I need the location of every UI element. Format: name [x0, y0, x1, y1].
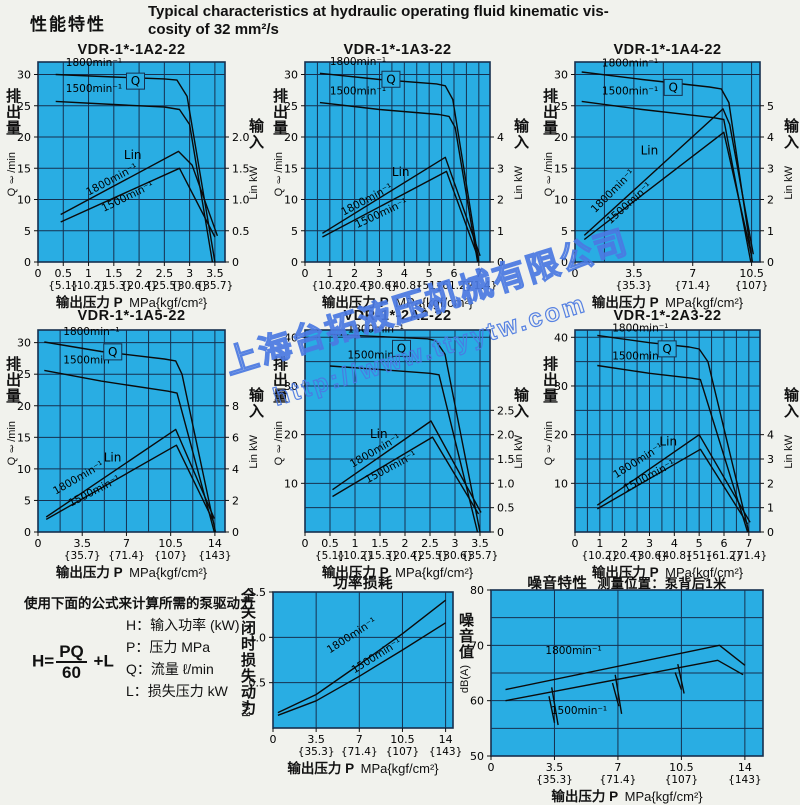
x-axis-label-unit: MPa{kgf/cm²} — [123, 565, 208, 580]
svg-text:30: 30 — [284, 69, 298, 82]
svg-text:6: 6 — [232, 431, 239, 444]
svg-text:2: 2 — [136, 267, 143, 280]
left-axis-unit-vdr2a2: Q ℓ/min — [273, 421, 285, 465]
svg-text:2: 2 — [767, 194, 774, 207]
svg-text:1.5: 1.5 — [105, 267, 123, 280]
x-axis-label-noise: 输出压力 P MPa{kgf/cm²} — [466, 785, 788, 805]
svg-text:4: 4 — [671, 537, 678, 550]
svg-text:3.5: 3.5 — [546, 761, 564, 774]
svg-text:0.5: 0.5 — [497, 502, 515, 515]
left-axis-title-noise: 噪音值 — [457, 612, 474, 660]
x-axis-label-unit: MPa{kgf/cm²} — [354, 761, 439, 776]
left-axis-unit-vdr2a3: Q ℓ/min — [543, 421, 555, 465]
chart-vdr1a4: VDR-1*-1A4-2203.5{35.3}7{71.4}10.5{107}0… — [535, 40, 800, 306]
svg-text:5: 5 — [24, 225, 31, 238]
svg-text:0: 0 — [270, 733, 277, 746]
svg-text:Lin: Lin — [392, 165, 410, 179]
page-title-cn: 性能特性 — [30, 10, 106, 35]
right-axis-title-vdr2a2: 输入 — [512, 387, 529, 419]
svg-text:14: 14 — [738, 761, 752, 774]
chart-vdr2a3: VDR-1*-2A3-2201{10.2}2{20.4}3{30.6}4{40.… — [535, 306, 800, 576]
left-axis-unit-noise: dB(A) — [459, 665, 471, 693]
svg-text:Q: Q — [397, 341, 406, 355]
svg-text:1.5: 1.5 — [497, 453, 515, 466]
right-axis-unit-vdr2a3: Lin kW — [783, 435, 795, 469]
svg-text:4: 4 — [767, 131, 774, 144]
svg-text:5: 5 — [426, 267, 433, 280]
svg-text:3: 3 — [646, 537, 653, 550]
svg-text:2: 2 — [232, 494, 239, 507]
svg-text:1800min⁻¹: 1800min⁻¹ — [348, 323, 404, 335]
x-axis-label-vdr1a5: 输出压力 P MPa{kgf/cm²} — [13, 561, 250, 581]
svg-text:1: 1 — [596, 537, 603, 550]
left-axis-title-vdr2a2: 排出量 — [271, 356, 288, 404]
svg-text:10: 10 — [554, 194, 568, 207]
x-axis-label-cn: 输出压力 P — [551, 789, 618, 804]
svg-text:0: 0 — [561, 256, 568, 269]
left-axis-title-vdr1a3: 排出量 — [271, 88, 288, 136]
svg-text:4: 4 — [401, 267, 408, 280]
svg-text:10.5: 10.5 — [390, 733, 415, 746]
svg-text:0: 0 — [572, 537, 579, 550]
svg-text:0.5: 0.5 — [55, 267, 73, 280]
svg-text:0: 0 — [302, 537, 309, 550]
svg-text:1800min⁻¹: 1800min⁻¹ — [612, 322, 668, 334]
svg-text:0: 0 — [35, 537, 42, 550]
svg-text:3: 3 — [376, 267, 383, 280]
x-axis-label-cn: 输出压力 P — [56, 565, 123, 580]
right-axis-title-vdr1a4: 输入 — [782, 118, 799, 150]
svg-text:8: 8 — [232, 400, 239, 413]
svg-text:7: 7 — [475, 267, 482, 280]
svg-text:60: 60 — [470, 695, 484, 708]
svg-text:3.5: 3.5 — [73, 537, 91, 550]
left-axis-title-vdr1a4: 排出量 — [541, 88, 558, 136]
left-axis-unit-power: kW — [241, 701, 253, 717]
svg-text:1: 1 — [326, 267, 333, 280]
svg-text:15: 15 — [17, 162, 31, 175]
svg-text:2: 2 — [767, 477, 774, 490]
chart-vdr1a3: VDR-1*-1A3-2201{10.2}2{20.4}3{30.6}4{40.… — [262, 40, 535, 306]
left-axis-title-vdr1a2: 排出量 — [4, 88, 21, 136]
svg-text:Lin: Lin — [104, 450, 122, 464]
svg-text:1: 1 — [85, 267, 92, 280]
svg-text:30: 30 — [17, 337, 31, 350]
svg-text:10: 10 — [554, 477, 568, 490]
svg-text:1: 1 — [767, 225, 774, 238]
svg-text:Q: Q — [131, 74, 140, 88]
svg-text:1: 1 — [767, 502, 774, 515]
chart-noise: 噪音特性测量位置：泵背后1米03.5{35.3}7{71.4}10.5{107}… — [435, 570, 800, 801]
formula-intro: 使用下面的公式来计算所需的泵驱动力 — [24, 592, 274, 612]
svg-text:0: 0 — [767, 526, 774, 539]
svg-text:30: 30 — [554, 69, 568, 82]
x-axis-label-unit: MPa{kgf/cm²} — [618, 789, 703, 804]
plot-vdr1a4: 03.5{35.3}7{71.4}10.5{107}05101520253001… — [535, 40, 800, 306]
svg-text:4: 4 — [497, 131, 504, 144]
svg-text:1800min⁻¹: 1800min⁻¹ — [602, 57, 658, 69]
svg-text:2: 2 — [621, 537, 628, 550]
svg-text:0: 0 — [232, 256, 239, 269]
x-axis-label-cn: 输出压力 P — [287, 761, 354, 776]
right-axis-unit-vdr2a2: Lin kW — [513, 435, 525, 469]
right-axis-unit-vdr1a2: Lin kW — [248, 166, 260, 200]
svg-text:2: 2 — [497, 194, 504, 207]
svg-text:40: 40 — [554, 331, 568, 344]
svg-text:5: 5 — [24, 494, 31, 507]
page-title-en-line1: Typical characteristics at hydraulic ope… — [148, 3, 648, 21]
svg-text:0: 0 — [24, 526, 31, 539]
svg-text:6: 6 — [720, 537, 727, 550]
left-axis-unit-vdr1a2: Q ℓ/min — [6, 152, 18, 196]
svg-text:Q: Q — [108, 345, 117, 359]
formula-def-h: H：输入功率 (kW) — [126, 614, 240, 636]
right-axis-title-vdr2a3: 输入 — [782, 387, 799, 419]
svg-text:3.5: 3.5 — [471, 537, 489, 550]
svg-text:7: 7 — [614, 761, 621, 774]
svg-text:0: 0 — [24, 256, 31, 269]
right-axis-unit-vdr1a5: Lin kW — [248, 435, 260, 469]
page-title-en: Typical characteristics at hydraulic ope… — [148, 3, 648, 39]
left-axis-title-vdr1a5: 排出量 — [4, 356, 21, 404]
plot-vdr1a5: 03.5{35.7}7{71.4}10.5{107}14{143}0510152… — [4, 306, 260, 576]
svg-text:1.5: 1.5 — [371, 537, 389, 550]
plot-vdr1a2: 00.5{5.1}1{10.2}1.5{15.3}2{20.4}2.5{25.5… — [4, 40, 260, 306]
svg-text:2.5: 2.5 — [156, 267, 174, 280]
svg-text:0: 0 — [488, 761, 495, 774]
formula-def-q: Q：流量 ℓ/min — [126, 658, 240, 680]
svg-text:14: 14 — [208, 537, 222, 550]
svg-text:50: 50 — [470, 750, 484, 763]
svg-text:10.5: 10.5 — [158, 537, 183, 550]
svg-text:0: 0 — [497, 526, 504, 539]
left-axis-unit-vdr1a3: Q ℓ/min — [273, 152, 285, 196]
plot-vdr1a3: 01{10.2}2{20.4}3{30.6}4{40.8}5{51}6{61.2… — [262, 40, 535, 306]
svg-text:0.5: 0.5 — [232, 225, 250, 238]
svg-text:10.5: 10.5 — [739, 267, 764, 280]
svg-text:1500min⁻¹: 1500min⁻¹ — [330, 86, 386, 98]
svg-text:1500min⁻¹: 1500min⁻¹ — [602, 86, 658, 98]
svg-text:0: 0 — [767, 256, 774, 269]
svg-text:2: 2 — [402, 537, 409, 550]
left-axis-unit-vdr1a5: Q ℓ/min — [6, 421, 18, 465]
svg-text:2: 2 — [351, 267, 358, 280]
svg-text:3: 3 — [186, 267, 193, 280]
svg-text:2.5: 2.5 — [421, 537, 439, 550]
svg-text:0: 0 — [232, 526, 239, 539]
svg-text:15: 15 — [17, 431, 31, 444]
formula-def-l: L：损失压力 kW — [126, 680, 240, 702]
svg-text:Lin: Lin — [641, 144, 659, 158]
svg-text:5: 5 — [561, 225, 568, 238]
formula-fraction: PQ60 — [56, 642, 87, 682]
svg-text:1.0: 1.0 — [232, 194, 250, 207]
svg-text:4: 4 — [232, 463, 239, 476]
svg-text:0: 0 — [35, 267, 42, 280]
svg-text:1800min⁻¹: 1800min⁻¹ — [63, 326, 119, 338]
svg-text:10: 10 — [17, 194, 31, 207]
right-axis-title-vdr1a3: 输入 — [512, 118, 529, 150]
svg-text:Q: Q — [386, 72, 395, 86]
svg-text:1.0: 1.0 — [497, 477, 515, 490]
formula-denominator: 60 — [56, 663, 87, 682]
page-title-en-line2: cosity of 32 mm²/s — [148, 21, 648, 39]
svg-text:3: 3 — [767, 453, 774, 466]
svg-text:Q: Q — [662, 342, 671, 356]
formula-tail: +L — [94, 651, 114, 670]
svg-text:1: 1 — [497, 225, 504, 238]
svg-text:80: 80 — [470, 584, 484, 597]
formula-block: 使用下面的公式来计算所需的泵驱动力 H：输入功率 (kW) P：压力 MPa Q… — [24, 592, 274, 612]
svg-text:20: 20 — [284, 429, 298, 442]
svg-text:5: 5 — [696, 537, 703, 550]
formula-equation: H=PQ60 +L — [32, 642, 114, 682]
svg-text:6: 6 — [450, 267, 457, 280]
plot-vdr2a3: 01{10.2}2{20.4}3{30.6}4{40.8}5{51}6{61.2… — [535, 306, 800, 576]
svg-text:10.5: 10.5 — [669, 761, 694, 774]
svg-text:1500min⁻¹: 1500min⁻¹ — [551, 705, 607, 717]
chart-vdr1a5: VDR-1*-1A5-2203.5{35.7}7{71.4}10.5{107}1… — [4, 306, 260, 576]
datasheet-page: { "page": { "header_cn": "性能特性", "title_… — [0, 0, 800, 801]
formula-numerator: PQ — [56, 642, 87, 663]
left-axis-title-vdr2a3: 排出量 — [541, 356, 558, 404]
svg-text:4: 4 — [767, 429, 774, 442]
svg-text:3: 3 — [452, 537, 459, 550]
svg-text:5: 5 — [767, 100, 774, 113]
svg-text:3: 3 — [497, 162, 504, 175]
svg-text:20: 20 — [554, 429, 568, 442]
svg-text:7: 7 — [689, 267, 696, 280]
svg-text:0: 0 — [572, 267, 579, 280]
svg-text:Lin: Lin — [124, 148, 142, 162]
svg-text:10: 10 — [17, 463, 31, 476]
svg-text:1800min⁻¹: 1800min⁻¹ — [66, 57, 122, 69]
svg-text:15: 15 — [284, 162, 298, 175]
right-axis-unit-vdr1a4: Lin kW — [783, 166, 795, 200]
left-axis-unit-vdr1a4: Q ℓ/min — [543, 152, 555, 196]
svg-text:1500min⁻¹: 1500min⁻¹ — [66, 83, 122, 95]
svg-text:0: 0 — [291, 256, 298, 269]
formula-def-p: P：压力 MPa — [126, 636, 240, 658]
svg-text:0: 0 — [302, 267, 309, 280]
formula-lead: H= — [32, 651, 54, 670]
formula-definitions: H：输入功率 (kW) P：压力 MPa Q：流量 ℓ/min L：损失压力 k… — [126, 614, 240, 702]
svg-text:15: 15 — [554, 162, 568, 175]
right-axis-unit-vdr1a3: Lin kW — [513, 166, 525, 200]
svg-text:7: 7 — [745, 537, 752, 550]
svg-text:0: 0 — [497, 256, 504, 269]
plot-noise: 03.5{35.3}7{71.4}10.5{107}14{143}5060708… — [435, 570, 800, 801]
plot-vdr2a2: 00.5{5.1}1{10.2}1.5{15.3}2{20.4}2.5{25.5… — [262, 306, 535, 576]
svg-text:1.5: 1.5 — [232, 162, 250, 175]
chart-vdr2a2: VDR-1*-2A2-2200.5{5.1}1{10.2}1.5{15.3}2{… — [262, 306, 535, 576]
svg-text:10: 10 — [284, 477, 298, 490]
svg-text:1800min⁻¹: 1800min⁻¹ — [330, 56, 386, 68]
svg-text:7: 7 — [123, 537, 130, 550]
chart-vdr1a2: VDR-1*-1A2-2200.5{5.1}1{10.2}1.5{15.3}2{… — [4, 40, 260, 306]
svg-text:1: 1 — [352, 537, 359, 550]
svg-text:7: 7 — [356, 733, 363, 746]
svg-text:3.5: 3.5 — [625, 267, 643, 280]
svg-text:5: 5 — [291, 225, 298, 238]
svg-text:30: 30 — [17, 69, 31, 82]
svg-text:40: 40 — [284, 331, 298, 344]
svg-text:0.5: 0.5 — [321, 537, 339, 550]
svg-text:2.0: 2.0 — [497, 429, 515, 442]
svg-text:3.5: 3.5 — [206, 267, 224, 280]
svg-text:Q: Q — [668, 80, 677, 94]
svg-text:3.5: 3.5 — [307, 733, 325, 746]
svg-text:10: 10 — [284, 194, 298, 207]
svg-text:3: 3 — [767, 162, 774, 175]
svg-text:1800min⁻¹: 1800min⁻¹ — [545, 645, 601, 657]
